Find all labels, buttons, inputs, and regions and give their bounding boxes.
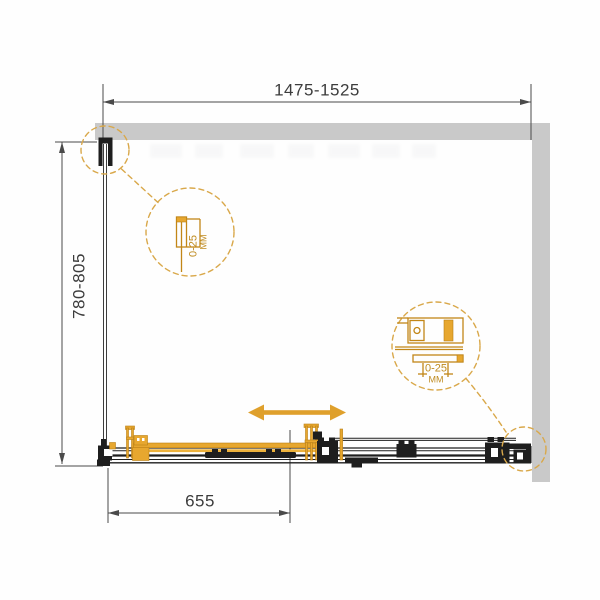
wall-top [95,123,550,140]
detail-circle-left [146,188,234,276]
wall-profile-top [99,138,113,167]
dim-depth-label: 780-805 [71,253,88,319]
slide-direction-arrow-icon [248,405,346,421]
dim-width-label: 1475-1525 [274,82,360,99]
door-panel-orange [133,443,328,452]
roller-mid [397,440,417,458]
detail-left-unit-label: MM [200,235,209,250]
walls [95,123,550,482]
connector-left [122,169,159,203]
detail-callouts [81,126,546,471]
shower-enclosure-dimension-drawing: 1475-1525 780-805 655 0-25 MM 0-25 MM [0,0,600,600]
detail-right-unit-label: MM [429,376,444,385]
side-glass-panel [104,144,107,449]
dim-door-label: 655 [185,493,215,510]
detail-right-range-label: 0-25 [425,364,447,375]
wall-right [532,123,550,482]
connector-right [466,379,506,433]
